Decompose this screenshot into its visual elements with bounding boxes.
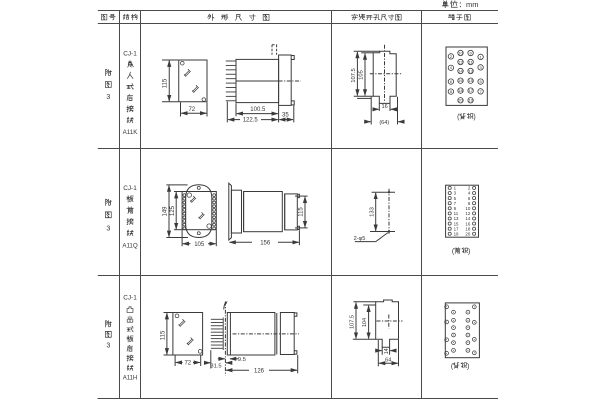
svg-text:105: 105: [194, 242, 205, 248]
svg-text:115: 115: [163, 78, 169, 88]
svg-text:104: 104: [362, 318, 368, 327]
svg-text:(64): (64): [379, 120, 389, 126]
svg-text:156: 156: [260, 240, 271, 246]
svg-text:CJ-1: CJ-1: [123, 294, 137, 301]
svg-text:9.5: 9.5: [238, 357, 246, 363]
svg-text:72: 72: [188, 107, 195, 113]
svg-text:18: 18: [458, 88, 463, 93]
svg-text:72: 72: [184, 361, 191, 367]
svg-text:13: 13: [468, 68, 473, 73]
svg-text:107.5: 107.5: [351, 68, 357, 83]
svg-text:125: 125: [170, 205, 176, 216]
svg-text:64: 64: [385, 357, 391, 363]
svg-text:): ): [468, 249, 470, 256]
svg-text:3: 3: [106, 94, 110, 101]
svg-text:16: 16: [458, 78, 463, 83]
svg-text:107.5: 107.5: [350, 315, 356, 329]
svg-text:16: 16: [381, 104, 387, 110]
svg-text:): ): [473, 114, 475, 121]
svg-text:100.5: 100.5: [250, 107, 266, 113]
svg-text:35: 35: [282, 112, 289, 118]
svg-text:133: 133: [369, 207, 375, 217]
svg-text:A11H: A11H: [123, 376, 138, 382]
svg-text:20: 20: [458, 98, 463, 103]
svg-text:14: 14: [458, 68, 463, 73]
svg-text:15: 15: [468, 78, 473, 83]
svg-text:17: 17: [468, 88, 473, 93]
svg-text:2-φ5: 2-φ5: [354, 236, 366, 242]
svg-text:115: 115: [299, 207, 305, 217]
svg-text:20: 20: [465, 232, 470, 237]
svg-text:12: 12: [458, 59, 463, 64]
svg-text:10: 10: [458, 50, 463, 55]
svg-text:31.5: 31.5: [210, 364, 221, 370]
svg-text:122.5: 122.5: [243, 118, 259, 124]
svg-text:126: 126: [254, 368, 265, 374]
svg-text:CJ-1: CJ-1: [123, 50, 137, 57]
svg-text:115: 115: [160, 330, 166, 340]
svg-text:3: 3: [106, 342, 110, 349]
svg-text:19: 19: [468, 98, 473, 103]
svg-text:19: 19: [454, 232, 459, 237]
svg-text:): ): [467, 363, 469, 370]
svg-text:：mm: ：mm: [459, 0, 479, 9]
svg-text:149: 149: [163, 206, 169, 217]
svg-text:14: 14: [384, 348, 390, 354]
svg-text:CJ-1: CJ-1: [123, 185, 137, 192]
svg-text:A11K: A11K: [123, 129, 139, 136]
svg-text:3: 3: [106, 225, 110, 232]
svg-text:105: 105: [359, 70, 365, 80]
svg-text:A11Q: A11Q: [122, 242, 138, 249]
